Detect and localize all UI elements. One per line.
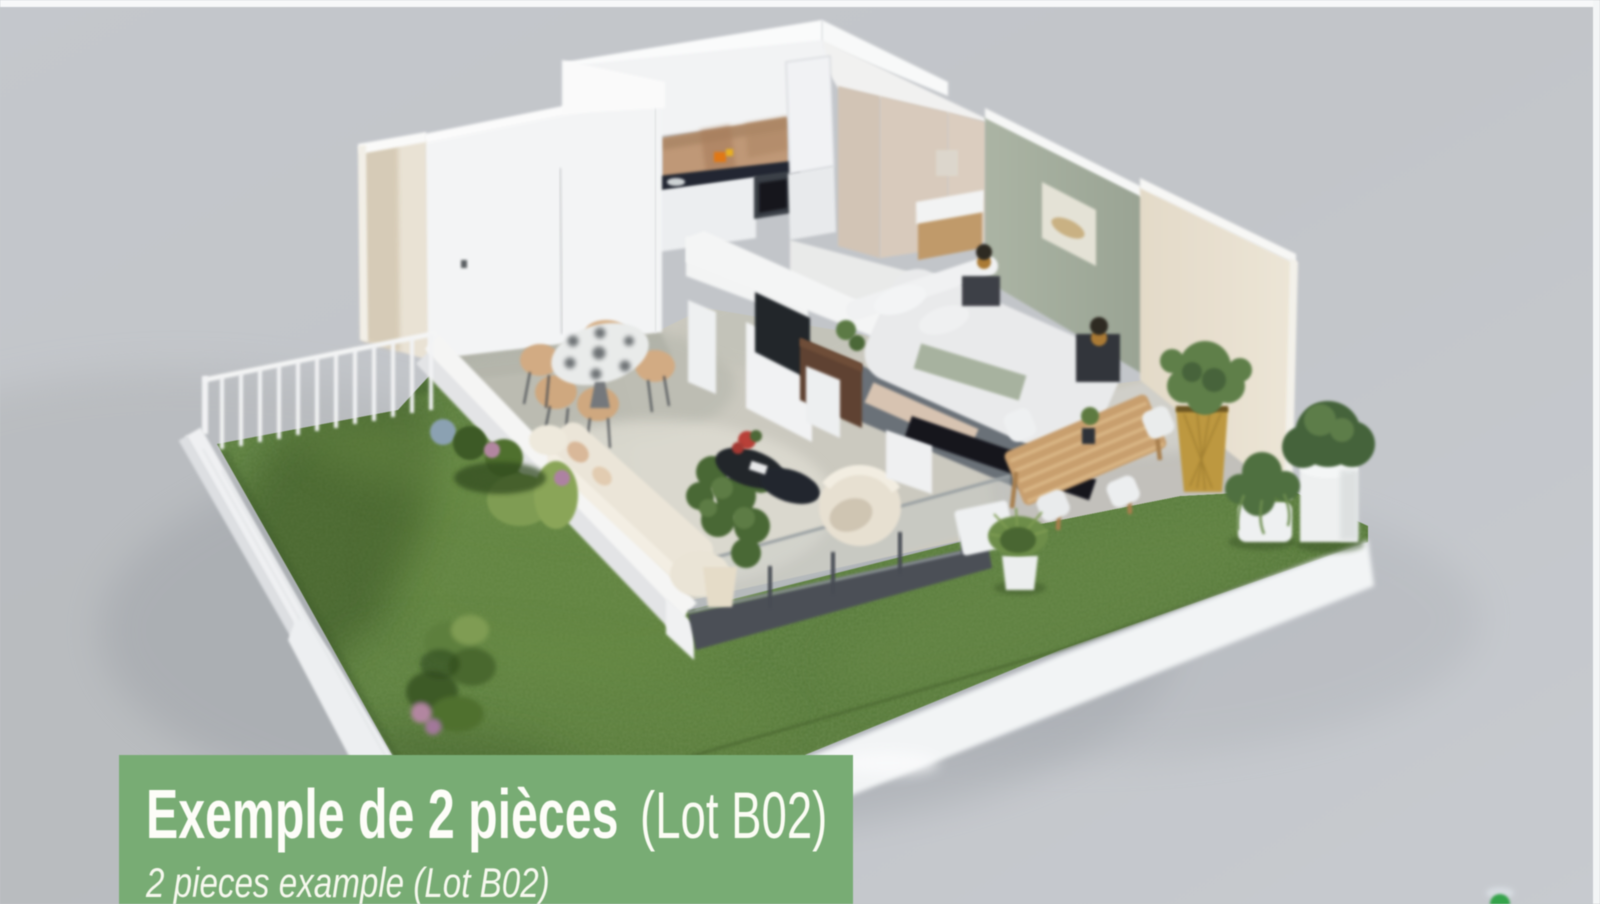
svg-text:Exemple de 2 pièces: Exemple de 2 pièces [146,775,618,853]
svg-text:(Lot B02): (Lot B02) [640,780,827,853]
svg-text:2 pieces example (Lot B02): 2 pieces example (Lot B02) [145,860,550,904]
